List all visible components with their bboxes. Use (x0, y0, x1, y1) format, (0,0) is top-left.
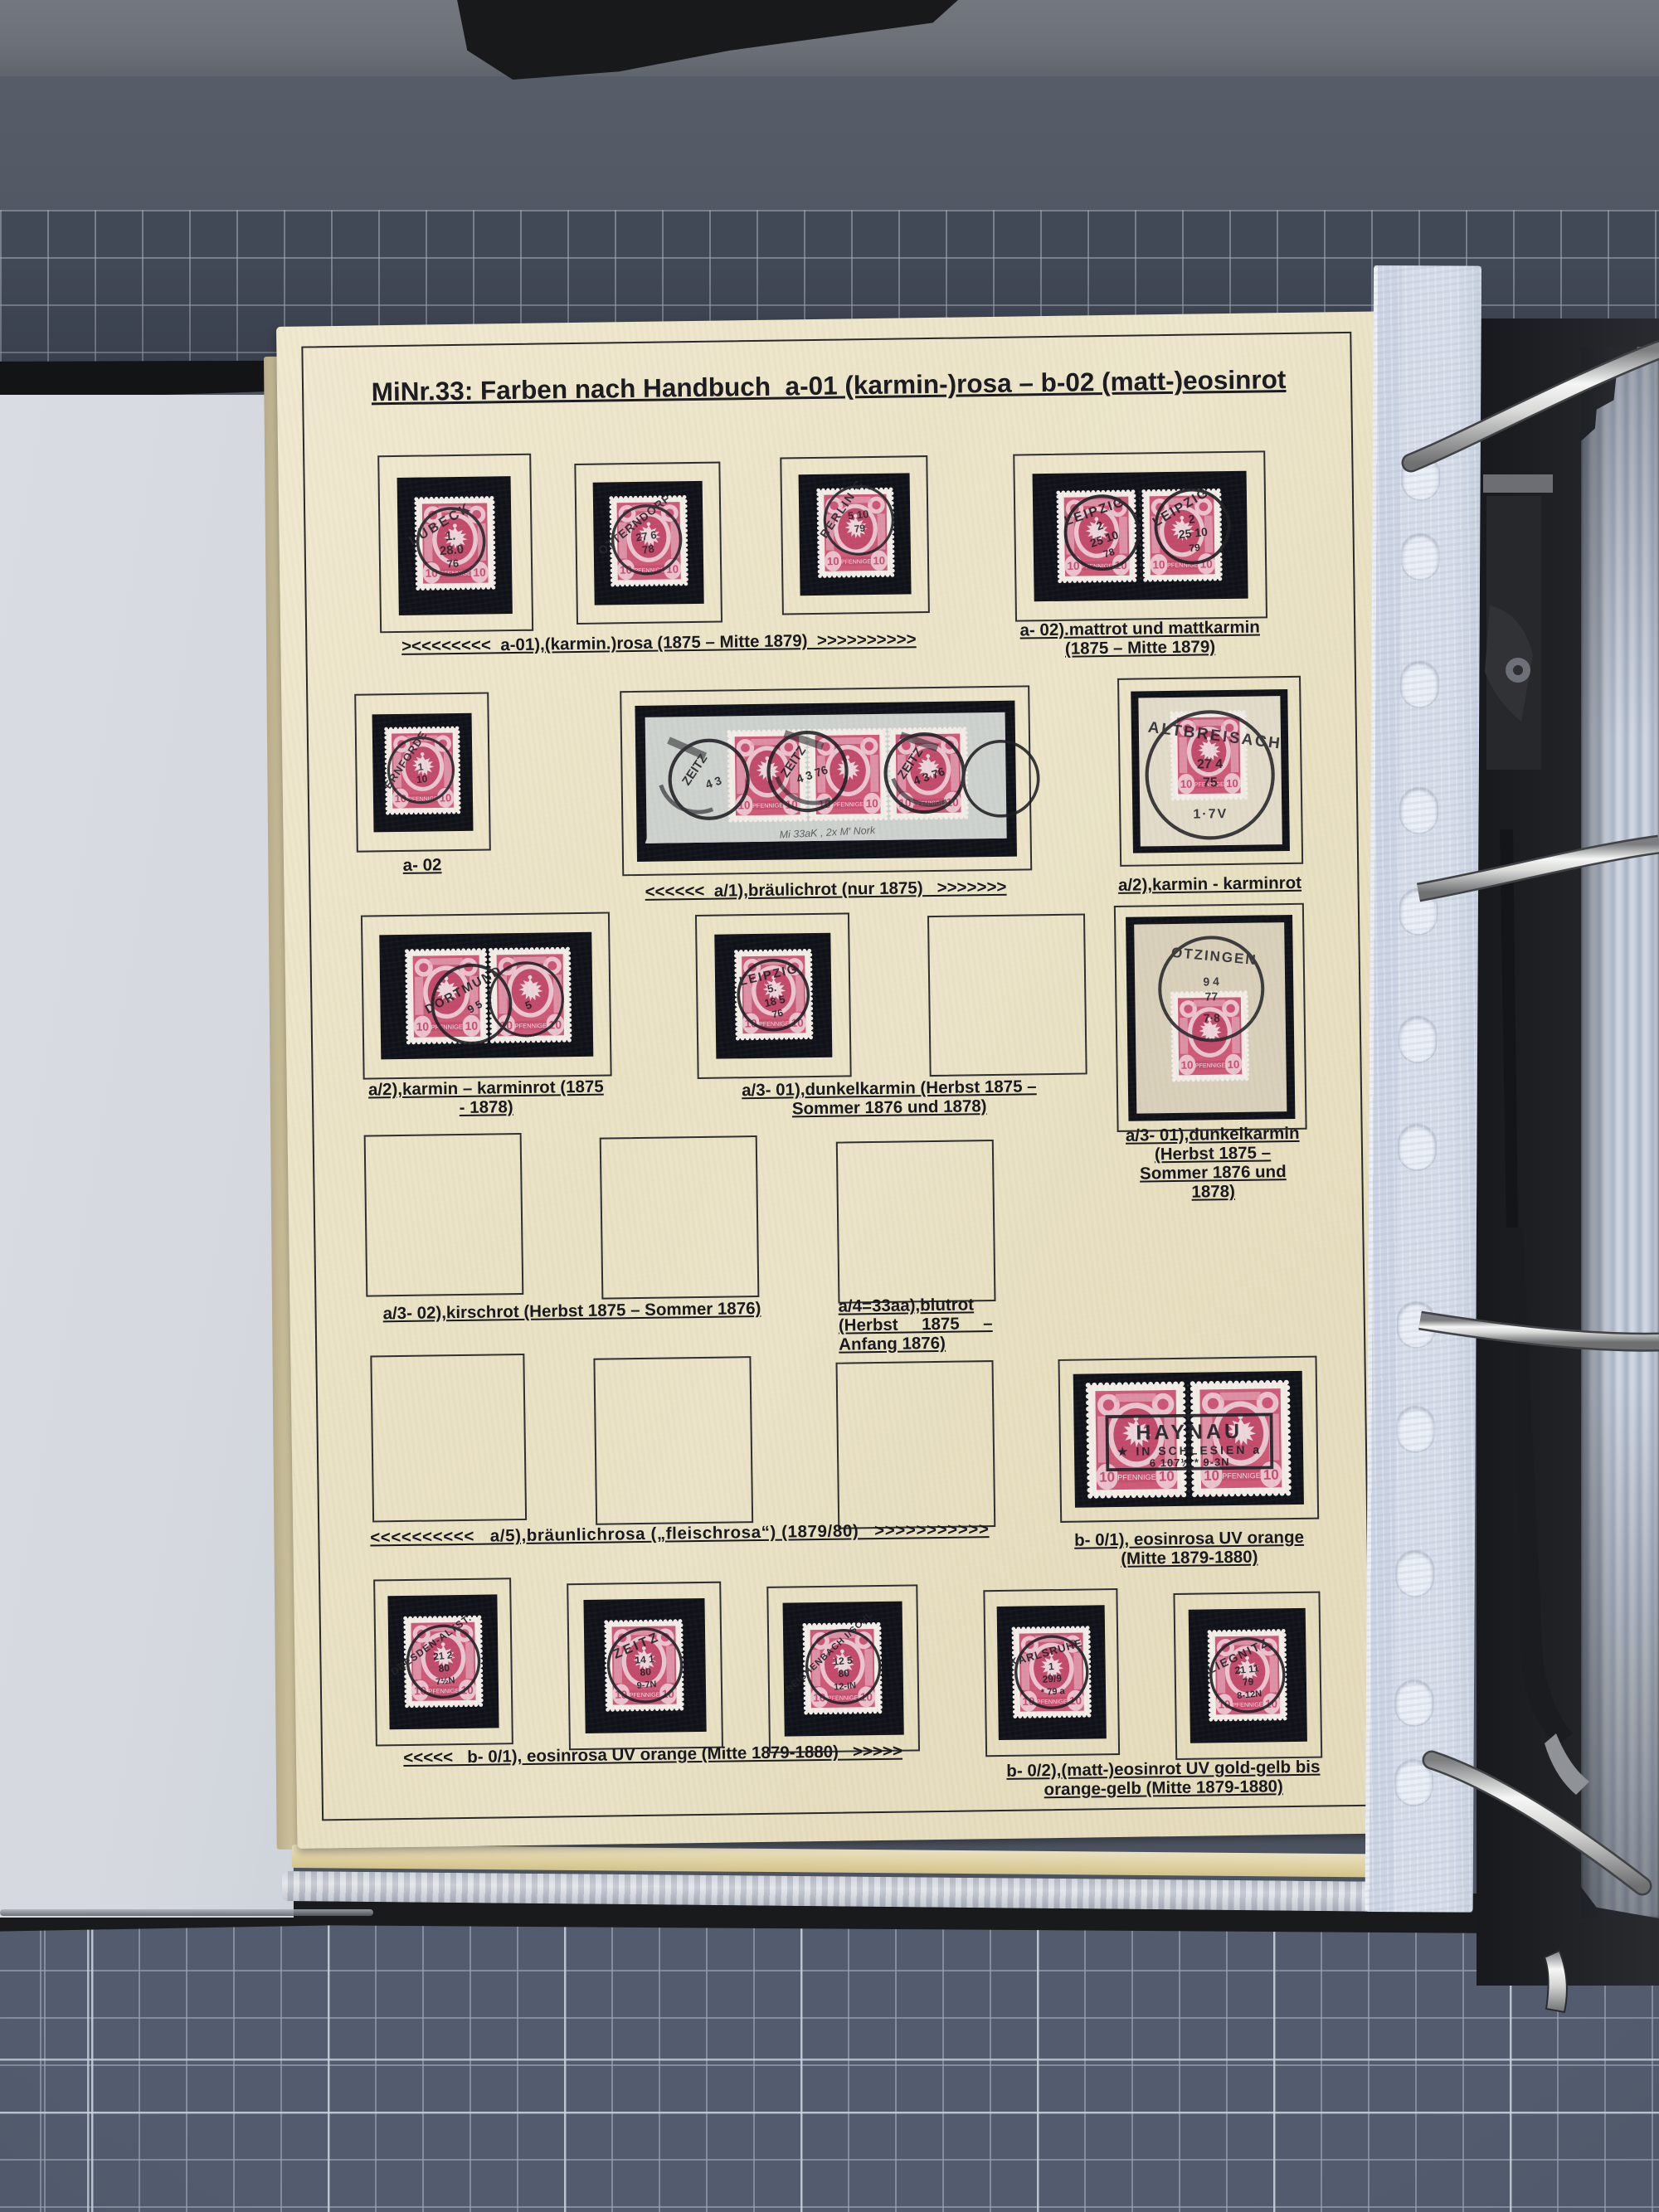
svg-text:6 107½ * 9-3N: 6 107½ * 9-3N (1150, 1456, 1230, 1469)
svg-text:HAYNAU: HAYNAU (1136, 1420, 1243, 1445)
svg-text:80: 80 (438, 1662, 450, 1675)
svg-text:27 4: 27 4 (1197, 757, 1223, 771)
svg-text:77: 77 (1204, 989, 1218, 1003)
svg-text:28.0: 28.0 (439, 542, 465, 558)
svg-text:7·8: 7·8 (1204, 1011, 1221, 1024)
svg-text:9-7N: 9-7N (636, 1680, 657, 1691)
svg-text:7½N: 7½N (435, 1675, 455, 1687)
svg-text:80: 80 (838, 1667, 850, 1680)
svg-text:14 1: 14 1 (635, 1653, 655, 1666)
svg-text:1: 1 (1048, 1660, 1054, 1672)
svg-text:80: 80 (640, 1665, 652, 1678)
svg-text:75: 75 (1203, 775, 1218, 790)
svg-text:* 79 a: * 79 a (1041, 1686, 1066, 1698)
svg-text:9 4: 9 4 (1203, 975, 1219, 988)
svg-text:12-IN: 12-IN (834, 1680, 857, 1692)
svg-text:1.: 1. (445, 529, 456, 544)
svg-text:78: 78 (641, 542, 655, 557)
svg-text:29/9: 29/9 (1042, 1672, 1063, 1685)
svg-text:21 11: 21 11 (1234, 1662, 1260, 1676)
svg-text:10: 10 (416, 773, 428, 785)
svg-text:5 10: 5 10 (847, 508, 869, 522)
svg-text:79: 79 (1189, 542, 1201, 554)
svg-text:1·7V: 1·7V (1193, 807, 1228, 822)
svg-text:79: 79 (854, 522, 866, 534)
svg-text:79: 79 (1242, 1675, 1254, 1688)
svg-text:76: 76 (446, 557, 460, 570)
svg-text:12 5: 12 5 (833, 1655, 854, 1668)
svg-text:21 2: 21 2 (432, 1649, 453, 1662)
